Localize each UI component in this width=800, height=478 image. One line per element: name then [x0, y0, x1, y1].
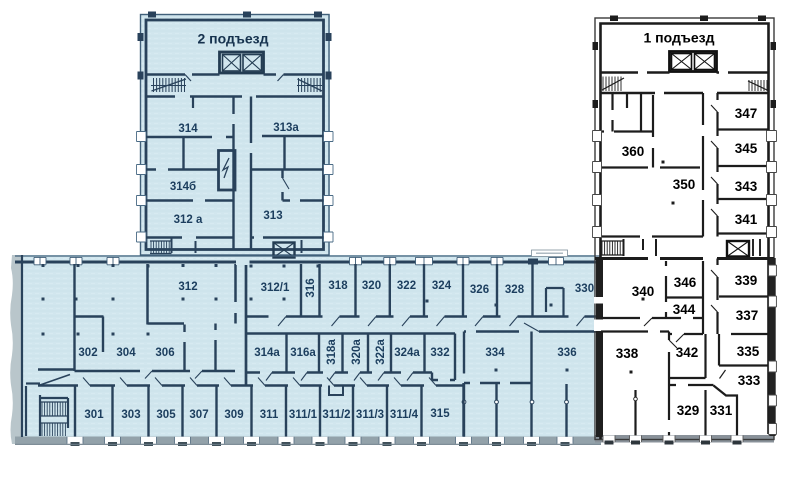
svg-text:340: 340: [632, 284, 655, 299]
svg-text:303: 303: [121, 409, 140, 421]
svg-text:314а: 314а: [254, 347, 280, 359]
svg-text:316а: 316а: [290, 347, 316, 359]
svg-text:312: 312: [178, 281, 197, 293]
svg-text:318: 318: [328, 280, 348, 292]
svg-text:341: 341: [735, 212, 758, 227]
svg-text:1 подъезд: 1 подъезд: [643, 30, 714, 46]
svg-text:338: 338: [616, 346, 639, 361]
svg-text:315: 315: [430, 408, 450, 420]
svg-text:345: 345: [735, 141, 758, 156]
svg-text:324а: 324а: [394, 347, 420, 359]
svg-text:312 а: 312 а: [174, 214, 203, 226]
svg-text:314: 314: [178, 123, 198, 135]
svg-text:333: 333: [738, 373, 761, 388]
svg-text:311/3: 311/3: [356, 409, 384, 421]
svg-text:313: 313: [263, 210, 282, 222]
svg-text:330: 330: [575, 283, 594, 295]
svg-text:336: 336: [557, 347, 576, 359]
svg-text:322а: 322а: [375, 339, 387, 365]
svg-text:342: 342: [676, 345, 699, 360]
svg-text:311: 311: [260, 409, 279, 421]
svg-text:312/1: 312/1: [261, 282, 290, 294]
svg-text:350: 350: [673, 177, 696, 192]
svg-text:332: 332: [430, 347, 449, 359]
svg-text:311/2: 311/2: [322, 409, 350, 421]
svg-text:326: 326: [470, 284, 489, 296]
svg-text:360: 360: [622, 144, 645, 159]
svg-text:322: 322: [397, 280, 416, 292]
svg-text:302: 302: [78, 347, 97, 359]
svg-text:347: 347: [735, 106, 758, 121]
svg-text:306: 306: [155, 347, 174, 359]
svg-text:305: 305: [156, 409, 176, 421]
svg-text:320: 320: [362, 280, 381, 292]
svg-text:334: 334: [485, 347, 505, 359]
svg-text:331: 331: [710, 403, 733, 418]
svg-text:313а: 313а: [273, 122, 299, 134]
svg-text:324: 324: [432, 280, 452, 292]
svg-text:318а: 318а: [326, 339, 338, 365]
svg-text:335: 335: [737, 344, 760, 359]
svg-text:311/4: 311/4: [390, 409, 419, 421]
svg-text:346: 346: [674, 275, 697, 290]
svg-text:314б: 314б: [170, 181, 196, 193]
svg-text:311/1: 311/1: [289, 409, 318, 421]
svg-text:343: 343: [735, 179, 758, 194]
svg-text:337: 337: [736, 308, 759, 323]
svg-text:329: 329: [677, 403, 700, 418]
svg-text:344: 344: [673, 302, 696, 317]
svg-text:339: 339: [735, 273, 758, 288]
svg-text:316: 316: [305, 278, 317, 297]
svg-text:328: 328: [505, 284, 525, 296]
svg-text:320а: 320а: [351, 339, 363, 365]
svg-text:304: 304: [116, 347, 136, 359]
svg-text:2 подъезд: 2 подъезд: [197, 31, 268, 47]
svg-text:307: 307: [189, 409, 208, 421]
svg-text:309: 309: [224, 409, 243, 421]
svg-text:301: 301: [84, 409, 104, 421]
